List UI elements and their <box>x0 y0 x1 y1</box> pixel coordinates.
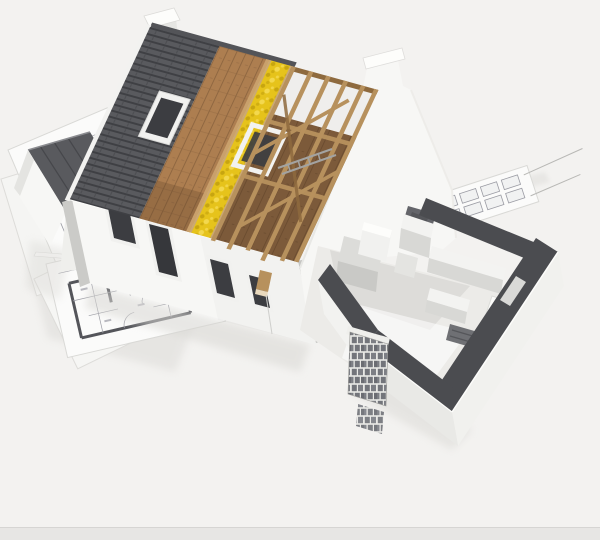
bottom-border <box>0 527 600 540</box>
screenshot-root <box>0 0 600 540</box>
house-3d-render <box>0 0 600 540</box>
